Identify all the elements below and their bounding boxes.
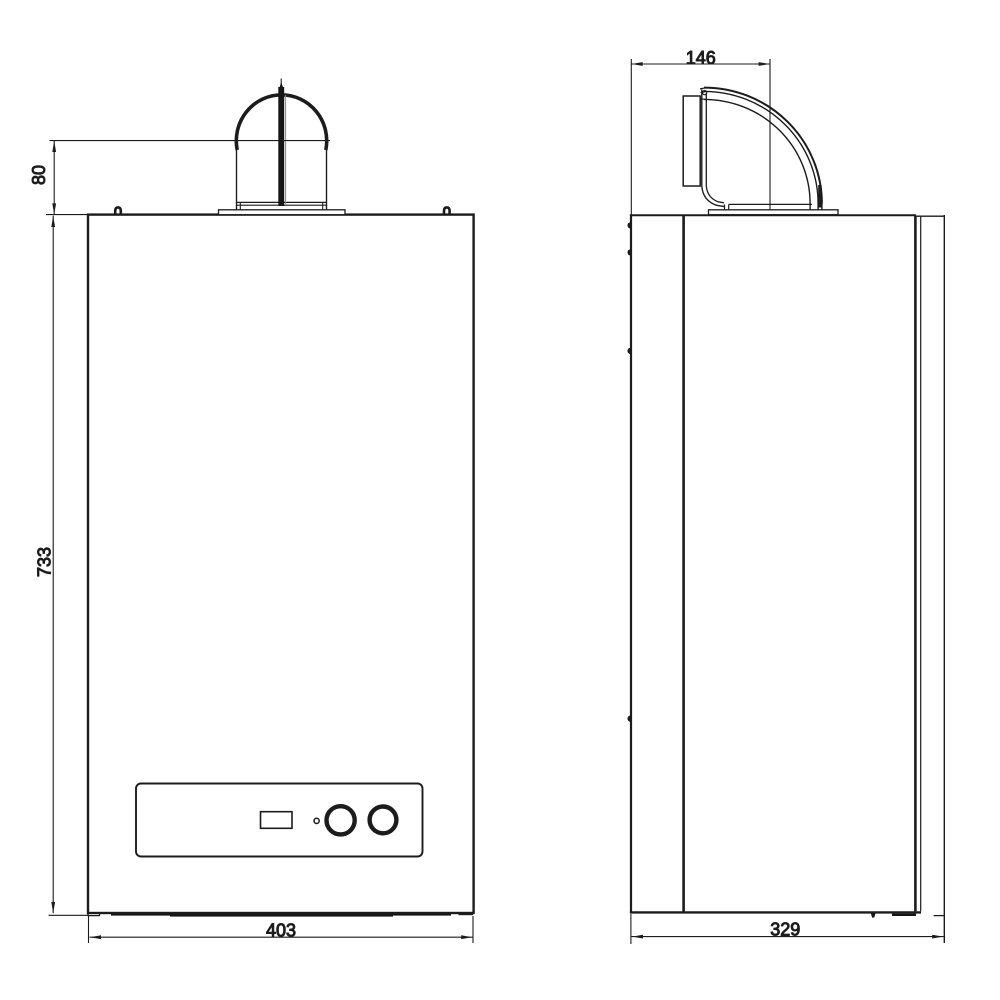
svg-text:733: 733 [35,547,55,577]
svg-text:329: 329 [770,920,800,940]
svg-text:403: 403 [266,921,296,941]
svg-text:80: 80 [29,165,49,185]
svg-text:146: 146 [686,48,716,68]
